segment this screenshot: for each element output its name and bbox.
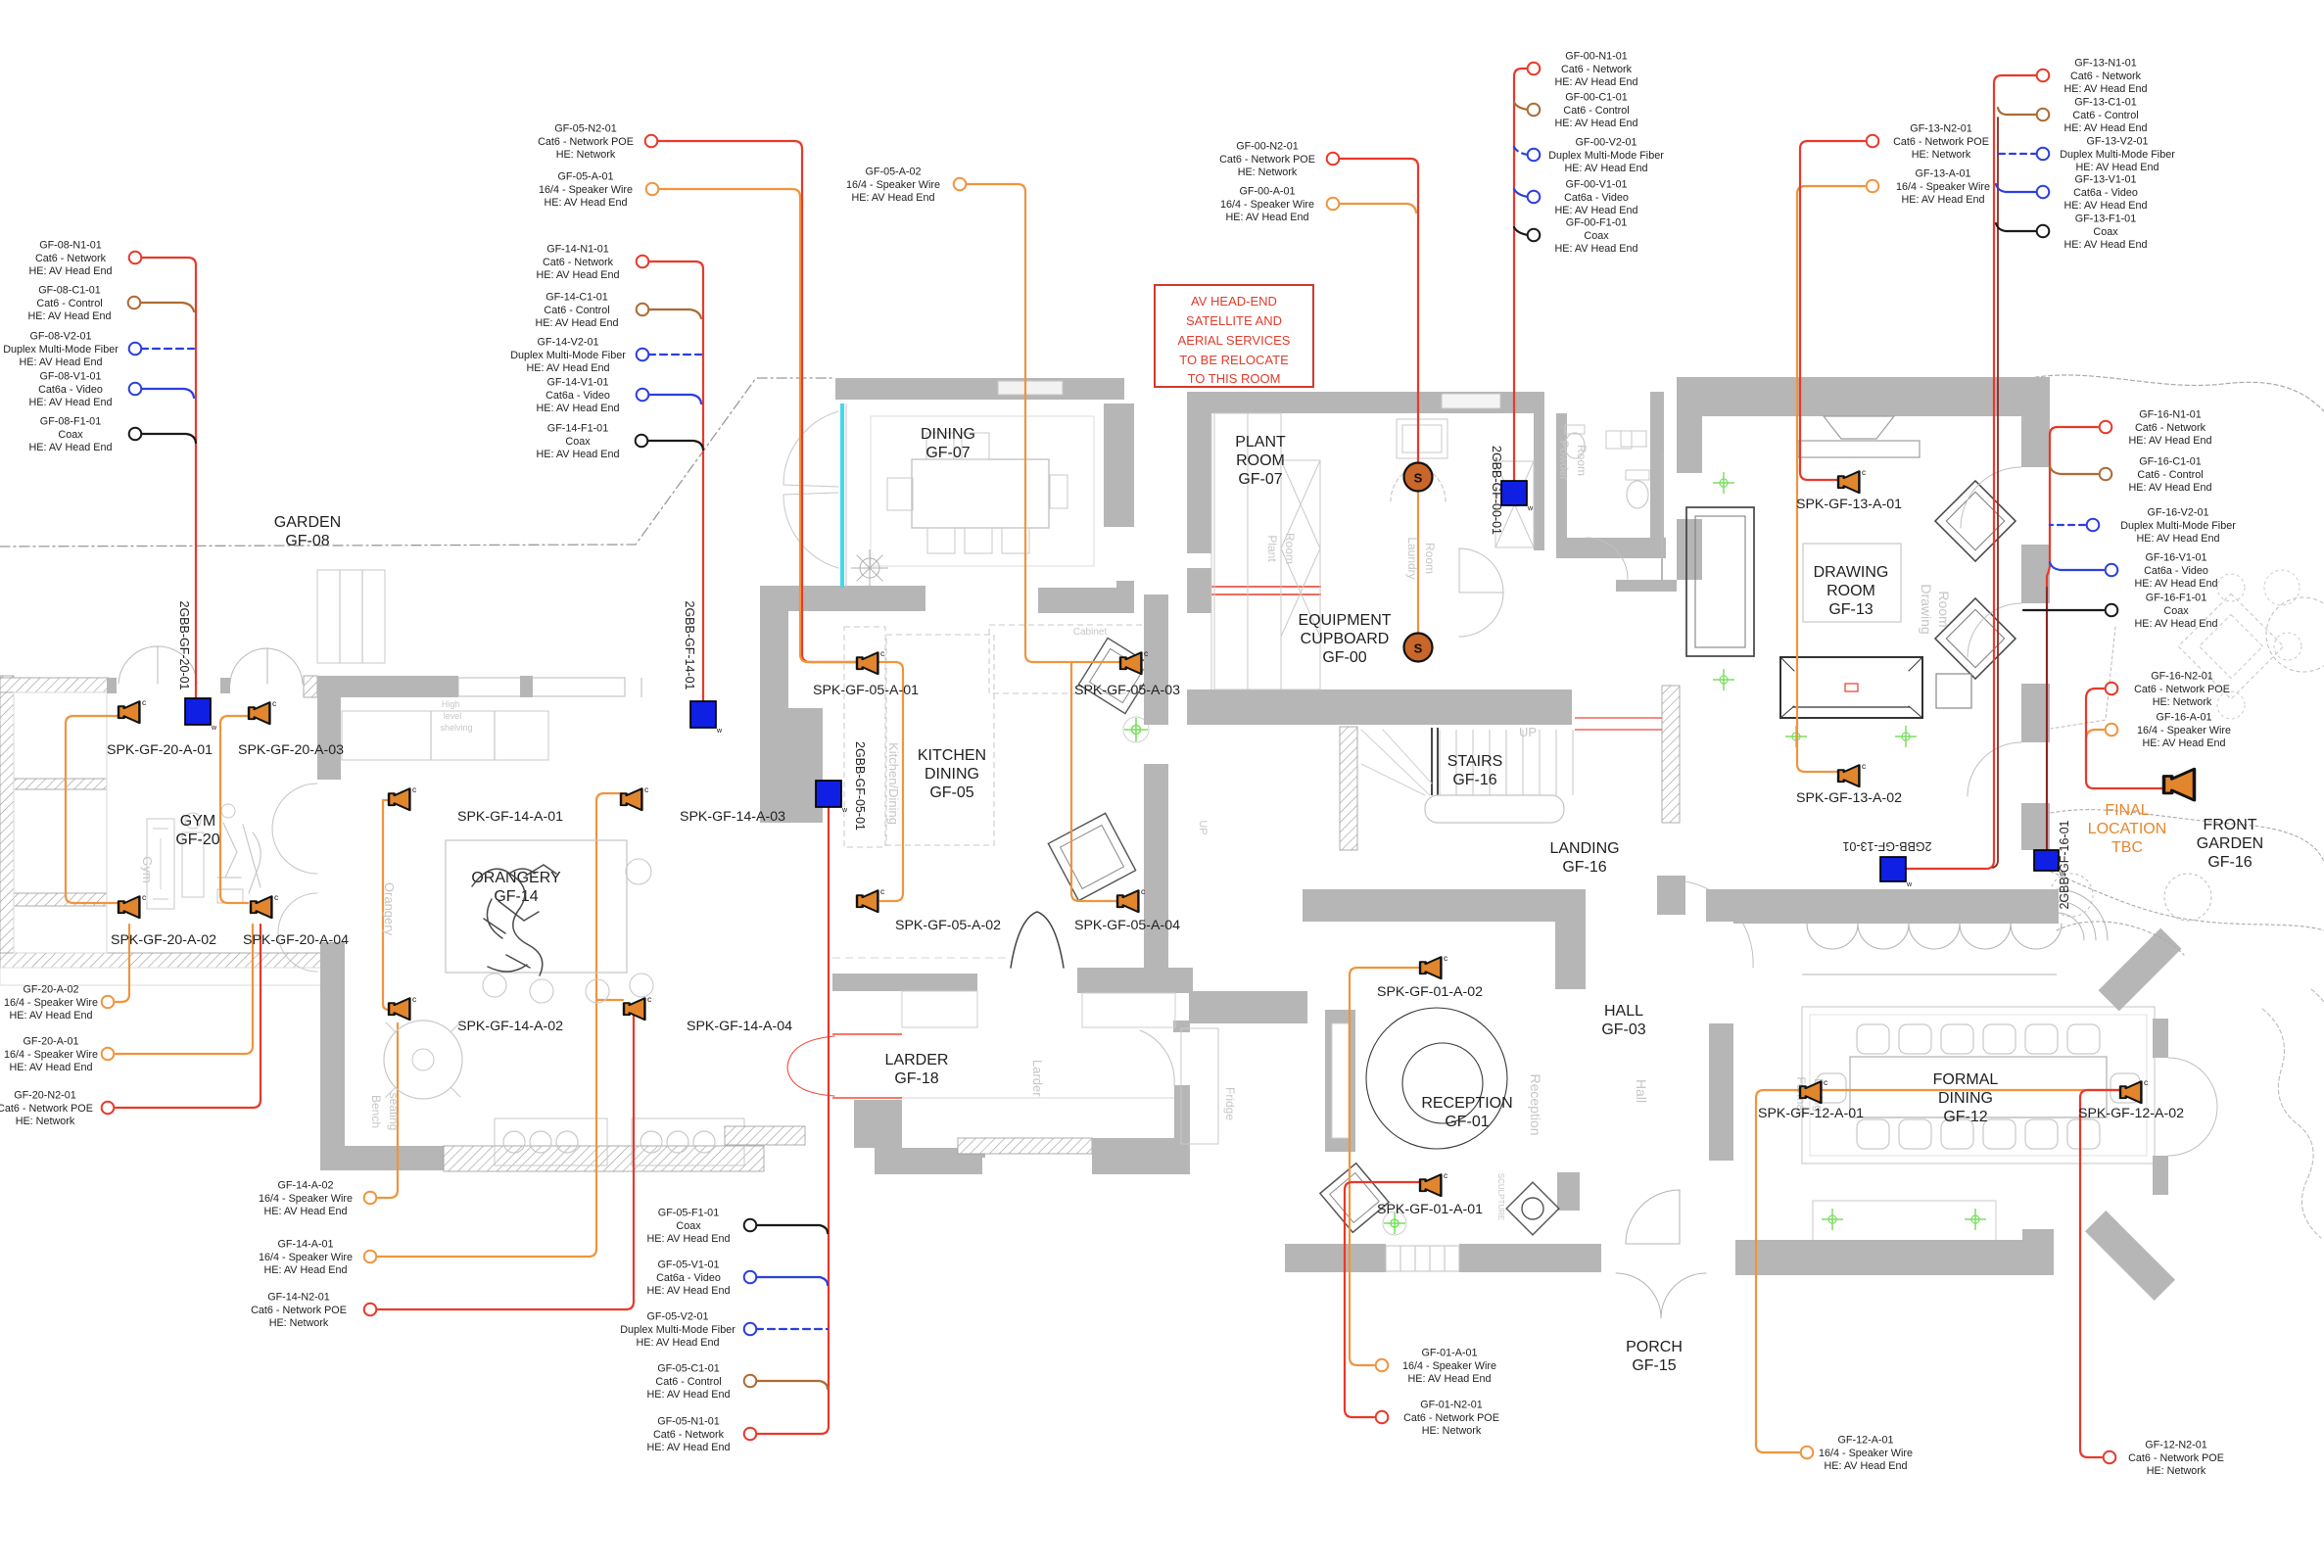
svg-text:HE: AV Head End: HE: AV Head End bbox=[2134, 578, 2217, 590]
svg-text:GF-00-V2-01: GF-00-V2-01 bbox=[1575, 137, 1636, 149]
svg-text:GF-08-F1-01: GF-08-F1-01 bbox=[40, 416, 101, 428]
svg-text:ROOM: ROOM bbox=[1826, 583, 1875, 599]
svg-text:SCULPTURE: SCULPTURE bbox=[1496, 1173, 1505, 1220]
svg-text:GF-18: GF-18 bbox=[894, 1070, 938, 1087]
svg-text:2GBB-GF-05-01: 2GBB-GF-05-01 bbox=[853, 741, 867, 831]
svg-text:HE: AV Head End: HE: AV Head End bbox=[1554, 205, 1637, 216]
svg-text:GF-16: GF-16 bbox=[1562, 859, 1606, 876]
svg-text:GF-13-V1-01: GF-13-V1-01 bbox=[2074, 174, 2136, 186]
svg-text:KITCHEN: KITCHEN bbox=[918, 747, 986, 764]
svg-text:GF-14-C1-01: GF-14-C1-01 bbox=[545, 292, 608, 304]
svg-text:GF-14-N2-01: GF-14-N2-01 bbox=[267, 1292, 330, 1304]
svg-text:Duplex Multi-Mode Fiber: Duplex Multi-Mode Fiber bbox=[2120, 520, 2236, 532]
svg-text:Coax: Coax bbox=[565, 436, 591, 448]
svg-text:Drawing: Drawing bbox=[1919, 584, 1934, 634]
svg-text:SPK-GF-20-A-02: SPK-GF-20-A-02 bbox=[111, 932, 216, 948]
svg-text:GF-16-V1-01: GF-16-V1-01 bbox=[2145, 552, 2206, 564]
svg-text:Cat6 - Network: Cat6 - Network bbox=[35, 253, 107, 264]
svg-text:SPK-GF-20-A-03: SPK-GF-20-A-03 bbox=[238, 742, 344, 758]
svg-text:GF-16: GF-16 bbox=[1452, 772, 1496, 788]
svg-text:GF-13-C1-01: GF-13-C1-01 bbox=[2074, 97, 2137, 109]
svg-text:HE: Network: HE: Network bbox=[1238, 166, 1298, 178]
svg-text:GF-05-N2-01: GF-05-N2-01 bbox=[554, 123, 617, 135]
svg-text:16/4 - Speaker Wire: 16/4 - Speaker Wire bbox=[4, 997, 98, 1009]
svg-text:Cat6 - Network: Cat6 - Network bbox=[2135, 422, 2206, 434]
svg-text:Cat6 - Network POE: Cat6 - Network POE bbox=[2134, 684, 2230, 695]
svg-text:SPK-GF-13-A-02: SPK-GF-13-A-02 bbox=[1796, 790, 1902, 806]
svg-text:Cat6 - Control: Cat6 - Control bbox=[655, 1376, 721, 1388]
svg-text:GF-14-V1-01: GF-14-V1-01 bbox=[546, 377, 608, 389]
svg-text:Room: Room bbox=[1575, 445, 1589, 476]
svg-text:FORMAL: FORMAL bbox=[1933, 1071, 1999, 1088]
svg-text:HE: AV Head End: HE: AV Head End bbox=[544, 197, 627, 209]
svg-text:GARDEN: GARDEN bbox=[274, 514, 341, 531]
svg-text:GF-16-N2-01: GF-16-N2-01 bbox=[2151, 671, 2213, 683]
svg-text:Cat6 - Network POE: Cat6 - Network POE bbox=[1893, 136, 1989, 148]
svg-text:HE: Network: HE: Network bbox=[269, 1317, 329, 1329]
svg-text:Cat6 - Network POE: Cat6 - Network POE bbox=[0, 1103, 93, 1115]
svg-text:HE: AV Head End: HE: AV Head End bbox=[9, 1010, 92, 1022]
svg-text:GF-20-A-01: GF-20-A-01 bbox=[24, 1036, 79, 1048]
svg-text:16/4 - Speaker Wire: 16/4 - Speaker Wire bbox=[259, 1252, 353, 1263]
svg-text:w: w bbox=[841, 807, 848, 814]
svg-text:GF-16-A-01: GF-16-A-01 bbox=[2157, 712, 2212, 724]
svg-text:GF-14-A-02: GF-14-A-02 bbox=[278, 1180, 334, 1192]
svg-text:Cat6 - Network: Cat6 - Network bbox=[2070, 71, 2142, 82]
svg-text:DRAWING: DRAWING bbox=[1814, 564, 1889, 581]
svg-text:Duplex Multi-Mode Fiber: Duplex Multi-Mode Fiber bbox=[510, 350, 626, 361]
svg-text:Coax: Coax bbox=[676, 1220, 701, 1232]
svg-text:w: w bbox=[211, 725, 217, 732]
svg-text:SPK-GF-14-A-04: SPK-GF-14-A-04 bbox=[687, 1019, 792, 1034]
svg-text:SPK-GF-05-A-01: SPK-GF-05-A-01 bbox=[813, 683, 919, 698]
svg-text:GF-07: GF-07 bbox=[1238, 471, 1282, 488]
svg-text:GARDEN: GARDEN bbox=[2197, 835, 2263, 852]
svg-text:16/4 - Speaker Wire: 16/4 - Speaker Wire bbox=[259, 1193, 353, 1205]
svg-text:GF-08-C1-01: GF-08-C1-01 bbox=[38, 285, 101, 297]
svg-text:SPK-GF-05-A-04: SPK-GF-05-A-04 bbox=[1074, 918, 1180, 933]
svg-text:Kitchen/Dining: Kitchen/Dining bbox=[886, 742, 901, 825]
svg-text:Fridge: Fridge bbox=[1223, 1087, 1237, 1120]
svg-text:RECEPTION: RECEPTION bbox=[1421, 1095, 1512, 1112]
svg-text:GF-12: GF-12 bbox=[1943, 1109, 1987, 1125]
svg-text:Cat6 - Network: Cat6 - Network bbox=[543, 257, 614, 268]
svg-text:Hall: Hall bbox=[1634, 1079, 1649, 1103]
svg-text:HE: AV Head End: HE: AV Head End bbox=[2075, 162, 2158, 173]
svg-text:CUPBOARD: CUPBOARD bbox=[1301, 631, 1390, 647]
svg-text:GF-13-A-01: GF-13-A-01 bbox=[1916, 168, 1971, 180]
svg-text:HE: AV Head End: HE: AV Head End bbox=[1824, 1460, 1907, 1472]
svg-text:HE: AV Head End: HE: AV Head End bbox=[646, 1233, 730, 1245]
svg-text:GF-00-N1-01: GF-00-N1-01 bbox=[1565, 51, 1628, 63]
svg-text:GF-03: GF-03 bbox=[1601, 1022, 1645, 1038]
svg-text:Cat6 - Network POE: Cat6 - Network POE bbox=[1403, 1412, 1499, 1424]
svg-text:16/4 - Speaker Wire: 16/4 - Speaker Wire bbox=[1896, 181, 1990, 193]
svg-text:Cat6 - Network POE: Cat6 - Network POE bbox=[538, 136, 634, 148]
svg-text:HE: AV Head End: HE: AV Head End bbox=[2134, 618, 2217, 630]
svg-text:HE: AV Head End: HE: AV Head End bbox=[28, 265, 112, 277]
svg-text:Reception: Reception bbox=[1528, 1073, 1543, 1135]
svg-text:16/4 - Speaker Wire: 16/4 - Speaker Wire bbox=[4, 1049, 98, 1061]
svg-text:HE: Network: HE: Network bbox=[2147, 1465, 2206, 1477]
svg-text:GF-07: GF-07 bbox=[925, 445, 970, 461]
svg-text:S: S bbox=[1414, 471, 1423, 486]
svg-text:SPK-GF-05-A-03: SPK-GF-05-A-03 bbox=[1074, 683, 1180, 698]
svg-text:Cat6a - Video: Cat6a - Video bbox=[656, 1272, 721, 1284]
svg-text:w: w bbox=[1527, 505, 1534, 512]
svg-text:HE: AV Head End: HE: AV Head End bbox=[636, 1337, 719, 1349]
svg-text:Larder: Larder bbox=[1030, 1060, 1045, 1097]
svg-text:HE: AV Head End: HE: AV Head End bbox=[2128, 435, 2211, 447]
svg-text:HE: AV Head End: HE: AV Head End bbox=[526, 362, 609, 374]
svg-text:S: S bbox=[1414, 641, 1423, 656]
svg-text:Room: Room bbox=[1283, 533, 1297, 564]
svg-text:Cat6 - Network POE: Cat6 - Network POE bbox=[251, 1305, 347, 1316]
svg-text:LANDING: LANDING bbox=[1549, 840, 1619, 857]
svg-text:HE: AV Head End: HE: AV Head End bbox=[1407, 1373, 1491, 1385]
svg-text:HE: AV Head End: HE: AV Head End bbox=[2063, 83, 2147, 95]
svg-text:UP: UP bbox=[1197, 820, 1209, 834]
svg-text:SPK-GF-05-A-02: SPK-GF-05-A-02 bbox=[895, 918, 1001, 933]
svg-text:Room: Room bbox=[1423, 543, 1437, 574]
svg-text:2GBB-GF-00-01: 2GBB-GF-00-01 bbox=[1490, 446, 1503, 535]
svg-text:Cat6a - Video: Cat6a - Video bbox=[1564, 192, 1629, 204]
svg-text:HE: AV Head End: HE: AV Head End bbox=[263, 1206, 347, 1217]
svg-text:GF-00-F1-01: GF-00-F1-01 bbox=[1566, 217, 1627, 229]
svg-text:GF-20-N2-01: GF-20-N2-01 bbox=[14, 1090, 76, 1102]
svg-text:16/4 - Speaker Wire: 16/4 - Speaker Wire bbox=[1220, 199, 1314, 211]
svg-text:Cat6 - Network POE: Cat6 - Network POE bbox=[2128, 1452, 2224, 1464]
svg-text:Orangery: Orangery bbox=[382, 882, 397, 936]
svg-text:GF-05: GF-05 bbox=[929, 784, 973, 801]
svg-text:PORCH: PORCH bbox=[1626, 1339, 1683, 1355]
svg-text:GF-20-A-02: GF-20-A-02 bbox=[24, 984, 79, 996]
svg-text:GYM: GYM bbox=[180, 813, 215, 830]
svg-text:GF-12-N2-01: GF-12-N2-01 bbox=[2145, 1440, 2207, 1451]
svg-text:GF-05-V1-01: GF-05-V1-01 bbox=[657, 1259, 719, 1271]
svg-text:SPK-GF-12-A-02: SPK-GF-12-A-02 bbox=[2078, 1106, 2184, 1121]
svg-text:GF-08-V2-01: GF-08-V2-01 bbox=[29, 331, 91, 343]
svg-text:GF-08-N1-01: GF-08-N1-01 bbox=[39, 240, 102, 252]
svg-text:GF-13-V2-01: GF-13-V2-01 bbox=[2086, 136, 2148, 148]
svg-text:HE: AV Head End: HE: AV Head End bbox=[19, 356, 102, 368]
svg-text:2GBB-GF-14-01: 2GBB-GF-14-01 bbox=[683, 600, 696, 689]
svg-text:Duplex Multi-Mode Fiber: Duplex Multi-Mode Fiber bbox=[2060, 149, 2175, 161]
svg-text:GF-05-F1-01: GF-05-F1-01 bbox=[658, 1208, 719, 1219]
svg-text:HE: Network: HE: Network bbox=[16, 1116, 75, 1127]
svg-text:AV HEAD-END: AV HEAD-END bbox=[1191, 294, 1277, 309]
svg-text:SPK-GF-14-A-02: SPK-GF-14-A-02 bbox=[457, 1019, 563, 1034]
svg-text:GF-00-C1-01: GF-00-C1-01 bbox=[1565, 92, 1628, 104]
svg-text:Cat6 - Network POE: Cat6 - Network POE bbox=[1219, 154, 1315, 166]
svg-text:GF-16: GF-16 bbox=[2207, 854, 2252, 871]
svg-text:HE: AV Head End: HE: AV Head End bbox=[28, 442, 112, 453]
svg-text:HE: AV Head End: HE: AV Head End bbox=[1554, 76, 1637, 88]
svg-text:HE: AV Head End: HE: AV Head End bbox=[536, 269, 619, 281]
svg-text:GF-08-V1-01: GF-08-V1-01 bbox=[39, 371, 101, 383]
svg-text:2GBB-GF-16-01: 2GBB-GF-16-01 bbox=[2058, 820, 2071, 909]
svg-text:Cat6 - Control: Cat6 - Control bbox=[36, 298, 102, 309]
svg-text:GF-00-N2-01: GF-00-N2-01 bbox=[1236, 141, 1299, 153]
svg-text:GF-20: GF-20 bbox=[175, 832, 219, 848]
svg-text:Gym: Gym bbox=[140, 856, 155, 882]
svg-text:Cat6a - Video: Cat6a - Video bbox=[2144, 565, 2208, 577]
svg-text:seating: seating bbox=[387, 1093, 401, 1131]
svg-text:Duplex Multi-Mode Fiber: Duplex Multi-Mode Fiber bbox=[3, 344, 119, 356]
svg-text:16/4 - Speaker Wire: 16/4 - Speaker Wire bbox=[1402, 1360, 1496, 1372]
svg-text:HE: AV Head End: HE: AV Head End bbox=[851, 192, 934, 204]
svg-text:HE: AV Head End: HE: AV Head End bbox=[263, 1264, 347, 1276]
svg-text:HE: AV Head End: HE: AV Head End bbox=[2063, 239, 2147, 251]
svg-text:Bench: Bench bbox=[369, 1095, 383, 1128]
svg-text:16/4 - Speaker Wire: 16/4 - Speaker Wire bbox=[539, 184, 633, 196]
svg-text:shelving: shelving bbox=[440, 723, 472, 733]
svg-text:w: w bbox=[716, 728, 723, 735]
svg-text:SATELLITE AND: SATELLITE AND bbox=[1186, 313, 1282, 328]
svg-text:GF-12-A-01: GF-12-A-01 bbox=[1838, 1435, 1894, 1447]
svg-text:GF-15: GF-15 bbox=[1632, 1357, 1676, 1374]
svg-text:HE: AV Head End: HE: AV Head End bbox=[28, 397, 112, 408]
svg-text:SPK-GF-13-A-01: SPK-GF-13-A-01 bbox=[1796, 497, 1902, 512]
svg-text:GF-13: GF-13 bbox=[1828, 601, 1873, 618]
svg-text:DINING: DINING bbox=[925, 766, 979, 783]
svg-text:LARDER: LARDER bbox=[885, 1052, 949, 1069]
svg-text:GF-13-N1-01: GF-13-N1-01 bbox=[2074, 58, 2137, 70]
svg-text:HE: AV Head End: HE: AV Head End bbox=[1901, 194, 1984, 206]
svg-text:Coax: Coax bbox=[2093, 226, 2118, 238]
svg-text:GF-14-V2-01: GF-14-V2-01 bbox=[537, 337, 598, 349]
svg-text:16/4 - Speaker Wire: 16/4 - Speaker Wire bbox=[1819, 1448, 1913, 1459]
svg-text:GF-05-N1-01: GF-05-N1-01 bbox=[657, 1416, 720, 1428]
svg-text:GF-13-F1-01: GF-13-F1-01 bbox=[2075, 214, 2136, 225]
svg-text:HALL: HALL bbox=[1604, 1003, 1643, 1020]
svg-text:GF-16-F1-01: GF-16-F1-01 bbox=[2146, 593, 2206, 604]
svg-text:UP: UP bbox=[1519, 725, 1537, 739]
svg-text:Plant: Plant bbox=[1265, 535, 1279, 562]
svg-text:DINING: DINING bbox=[1938, 1090, 1993, 1107]
svg-text:HE: AV Head End: HE: AV Head End bbox=[536, 449, 619, 460]
svg-text:HE: AV Head End: HE: AV Head End bbox=[536, 403, 619, 414]
svg-text:Coax: Coax bbox=[1584, 230, 1609, 242]
svg-text:SPK-GF-20-A-04: SPK-GF-20-A-04 bbox=[243, 932, 349, 948]
svg-text:Cat6 - Control: Cat6 - Control bbox=[2072, 110, 2138, 121]
svg-text:GF-16-N1-01: GF-16-N1-01 bbox=[2139, 409, 2202, 421]
svg-text:Cat6 - Control: Cat6 - Control bbox=[544, 305, 609, 316]
svg-text:2GBB-GF-13-01: 2GBB-GF-13-01 bbox=[1842, 839, 1931, 853]
svg-text:level: level bbox=[444, 711, 462, 721]
svg-text:16/4 - Speaker Wire: 16/4 - Speaker Wire bbox=[846, 179, 940, 191]
svg-text:HE: AV Head End: HE: AV Head End bbox=[1225, 212, 1308, 223]
svg-text:HE: AV Head End: HE: AV Head End bbox=[1554, 118, 1637, 129]
svg-text:HE: Network: HE: Network bbox=[2153, 696, 2212, 708]
svg-text:HE: AV Head End: HE: AV Head End bbox=[646, 1442, 730, 1453]
svg-text:GF-05-V2-01: GF-05-V2-01 bbox=[646, 1311, 708, 1323]
svg-text:GF-01-A-01: GF-01-A-01 bbox=[1422, 1348, 1478, 1359]
svg-text:HE: AV Head End: HE: AV Head End bbox=[2063, 200, 2147, 212]
svg-text:SPK-GF-01-A-01: SPK-GF-01-A-01 bbox=[1377, 1202, 1483, 1217]
svg-text:GF-05-C1-01: GF-05-C1-01 bbox=[657, 1363, 720, 1375]
svg-text:w: w bbox=[1906, 881, 1913, 888]
svg-text:TBC: TBC bbox=[2111, 839, 2143, 856]
svg-text:Cat6a - Video: Cat6a - Video bbox=[2073, 187, 2138, 199]
svg-text:Powder: Powder bbox=[1557, 441, 1571, 481]
svg-text:Cabinet: Cabinet bbox=[1073, 627, 1108, 638]
svg-text:SPK-GF-20-A-01: SPK-GF-20-A-01 bbox=[107, 742, 213, 758]
svg-text:TO THIS ROOM: TO THIS ROOM bbox=[1188, 371, 1281, 386]
svg-text:16/4 - Speaker Wire: 16/4 - Speaker Wire bbox=[2137, 725, 2231, 736]
svg-text:SPK-GF-12-A-01: SPK-GF-12-A-01 bbox=[1758, 1106, 1864, 1121]
svg-text:HE: AV Head End: HE: AV Head End bbox=[27, 310, 111, 322]
svg-text:Coax: Coax bbox=[58, 429, 83, 441]
svg-text:HE: AV Head End: HE: AV Head End bbox=[1554, 243, 1637, 255]
svg-text:ROOM: ROOM bbox=[1236, 452, 1285, 469]
svg-text:HE: AV Head End: HE: AV Head End bbox=[2063, 122, 2147, 134]
svg-text:2GBB-GF-20-01: 2GBB-GF-20-01 bbox=[177, 600, 191, 689]
svg-text:HE: AV Head End: HE: AV Head End bbox=[535, 317, 618, 329]
svg-text:HE: AV Head End: HE: AV Head End bbox=[1564, 163, 1647, 174]
svg-text:AERIAL SERVICES: AERIAL SERVICES bbox=[1178, 333, 1291, 348]
svg-text:GF-00-V1-01: GF-00-V1-01 bbox=[1565, 179, 1627, 191]
svg-text:Room: Room bbox=[1936, 591, 1952, 627]
svg-text:HE: Network: HE: Network bbox=[1422, 1425, 1482, 1437]
svg-text:FRONT: FRONT bbox=[2203, 817, 2256, 833]
svg-text:STAIRS: STAIRS bbox=[1447, 753, 1503, 770]
svg-text:EQUIPMENT: EQUIPMENT bbox=[1298, 612, 1391, 629]
svg-text:GF-14-F1-01: GF-14-F1-01 bbox=[547, 423, 608, 435]
svg-text:Cat6 - Control: Cat6 - Control bbox=[1563, 105, 1629, 117]
svg-text:SPK-GF-01-A-02: SPK-GF-01-A-02 bbox=[1377, 984, 1483, 1000]
svg-text:GF-14-A-01: GF-14-A-01 bbox=[278, 1239, 334, 1251]
svg-text:SPK-GF-14-A-01: SPK-GF-14-A-01 bbox=[457, 809, 563, 825]
svg-text:Cat6 - Network: Cat6 - Network bbox=[1561, 64, 1633, 75]
svg-text:GF-01-N2-01: GF-01-N2-01 bbox=[1420, 1400, 1483, 1411]
svg-text:HE: AV Head End: HE: AV Head End bbox=[646, 1389, 730, 1401]
svg-text:SPK-GF-14-A-03: SPK-GF-14-A-03 bbox=[680, 809, 785, 825]
svg-text:GF-05-A-01: GF-05-A-01 bbox=[558, 171, 614, 183]
svg-text:Cat6a - Video: Cat6a - Video bbox=[545, 390, 610, 402]
svg-text:GF-16-C1-01: GF-16-C1-01 bbox=[2139, 456, 2202, 468]
svg-text:HE: AV Head End: HE: AV Head End bbox=[646, 1285, 730, 1297]
svg-text:GF-13-N2-01: GF-13-N2-01 bbox=[1910, 123, 1972, 135]
svg-text:Cat6 - Network: Cat6 - Network bbox=[653, 1429, 725, 1441]
svg-text:Duplex Multi-Mode Fiber: Duplex Multi-Mode Fiber bbox=[1548, 150, 1664, 162]
svg-text:LOCATION: LOCATION bbox=[2088, 821, 2167, 837]
svg-text:High: High bbox=[442, 699, 460, 709]
svg-text:HE: AV Head End: HE: AV Head End bbox=[9, 1062, 92, 1073]
svg-text:Cat6 - Control: Cat6 - Control bbox=[2137, 469, 2203, 481]
svg-text:HE: Network: HE: Network bbox=[556, 149, 616, 161]
svg-text:Coax: Coax bbox=[2163, 605, 2189, 617]
svg-text:DINING: DINING bbox=[921, 426, 975, 443]
svg-text:GF-00: GF-00 bbox=[1322, 649, 1366, 666]
svg-text:GF-01: GF-01 bbox=[1445, 1114, 1489, 1130]
svg-text:GF-00-A-01: GF-00-A-01 bbox=[1240, 186, 1296, 198]
svg-text:HE: AV Head End: HE: AV Head End bbox=[2128, 482, 2211, 494]
svg-text:Cat6a - Video: Cat6a - Video bbox=[38, 384, 103, 396]
svg-text:TO BE RELOCATE: TO BE RELOCATE bbox=[1179, 353, 1289, 367]
svg-text:GF-05-A-02: GF-05-A-02 bbox=[866, 166, 922, 178]
svg-text:GF-08: GF-08 bbox=[285, 533, 329, 549]
svg-text:FINAL: FINAL bbox=[2105, 802, 2149, 819]
svg-text:HE: AV Head End: HE: AV Head End bbox=[2136, 533, 2219, 545]
svg-text:HE: Network: HE: Network bbox=[1912, 149, 1971, 161]
svg-text:GF-16-V2-01: GF-16-V2-01 bbox=[2147, 507, 2208, 519]
svg-text:Duplex Multi-Mode Fiber: Duplex Multi-Mode Fiber bbox=[620, 1324, 735, 1336]
svg-text:HE: AV Head End: HE: AV Head End bbox=[2142, 737, 2225, 749]
svg-text:GF-14-N1-01: GF-14-N1-01 bbox=[546, 244, 609, 256]
svg-text:PLANT: PLANT bbox=[1235, 434, 1286, 451]
